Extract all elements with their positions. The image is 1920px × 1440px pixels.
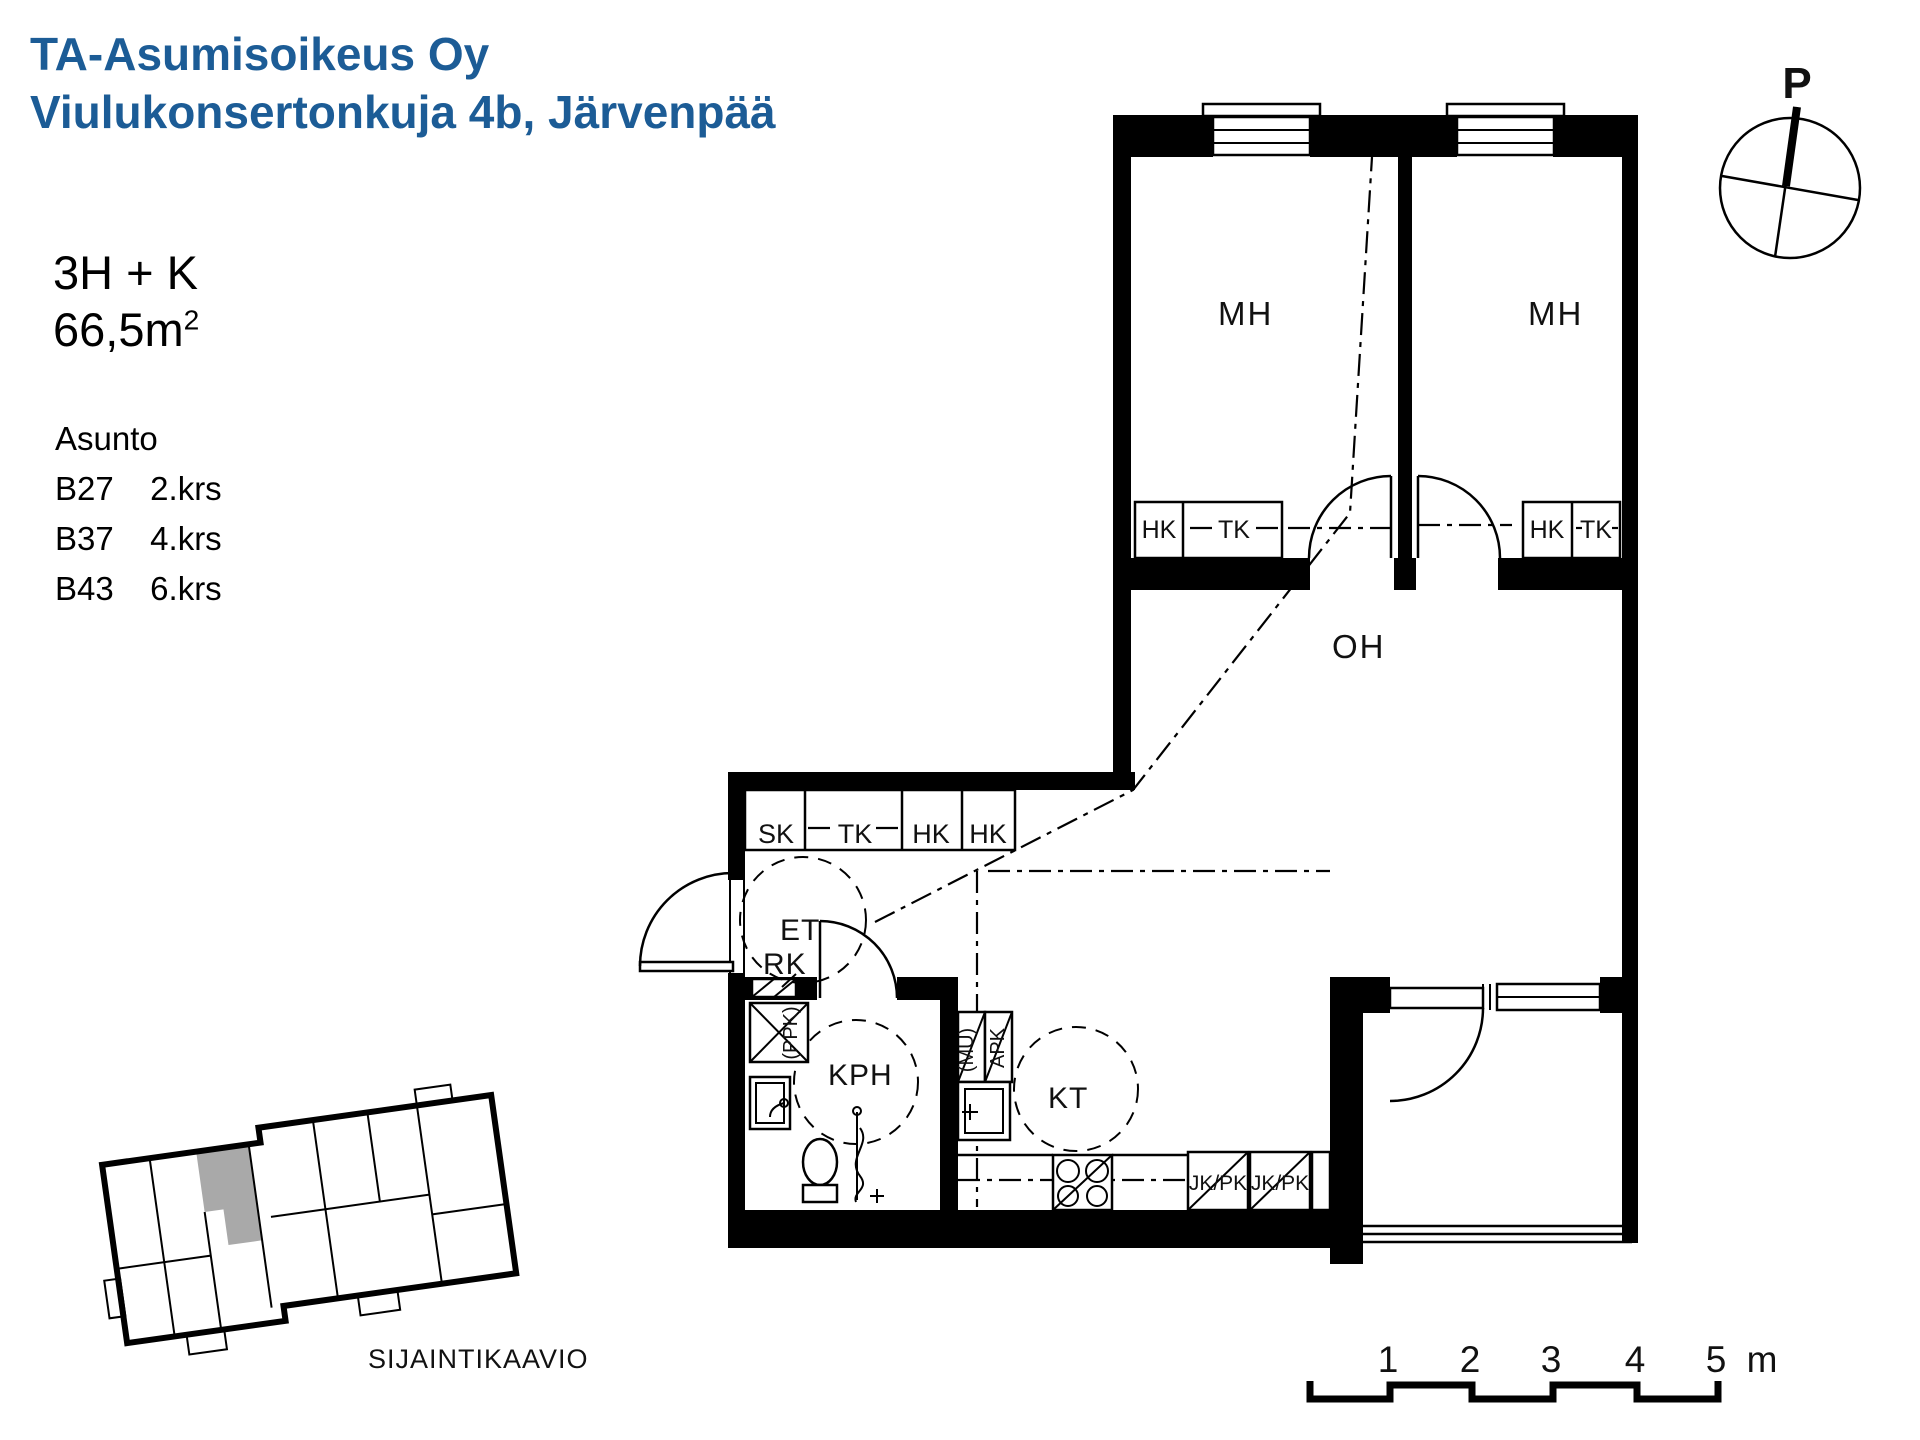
- toilet-icon: [803, 1139, 837, 1202]
- kitchen-sink-icon: [958, 1082, 1010, 1140]
- entrance-door-icon: [640, 873, 744, 973]
- closet-label: HK: [1142, 516, 1177, 544]
- floor-plan-page: TA-Asumisoikeus Oy Viulukonsertonkuja 4b…: [0, 0, 1920, 1440]
- ppk-label: (PPK): [780, 1006, 802, 1059]
- scale-bar-line: [1310, 1381, 1718, 1399]
- window-icon: [1483, 984, 1600, 1010]
- room-label-rk: RK: [763, 948, 807, 981]
- window-icon: [1447, 104, 1564, 155]
- scale-unit: m: [1747, 1339, 1778, 1380]
- closet-label: SK: [758, 819, 794, 849]
- balcony-door-icon: [1390, 988, 1483, 1101]
- closet-label: TK: [1580, 516, 1612, 544]
- room-label-et: ET: [780, 914, 820, 947]
- electric-panel-icon: [752, 979, 796, 997]
- scale-tick: 3: [1541, 1339, 1562, 1380]
- highlighted-unit: [196, 1144, 262, 1247]
- shower-icon: [853, 1107, 884, 1203]
- closet-label: HK: [969, 819, 1007, 849]
- window-icon: [1203, 104, 1320, 155]
- microwave-reservation-icon: (MU): [956, 1012, 985, 1082]
- cabinet-filler: [1312, 1152, 1330, 1210]
- closets: SK TK HK HK HK TK HK TK: [745, 502, 1620, 850]
- stove-icon: [1053, 1155, 1112, 1210]
- fridge-freezer-icon: JK/PK: [1188, 1152, 1248, 1210]
- scale-tick: 4: [1625, 1339, 1646, 1380]
- building-outline: [100, 1095, 518, 1343]
- closet-label: TK: [838, 819, 873, 849]
- bathroom-sink-icon: [750, 1077, 790, 1129]
- north-label: P: [1782, 59, 1811, 108]
- fridge-freezer-icon: JK/PK: [1250, 1152, 1310, 1210]
- bathroom-door-icon: [820, 921, 897, 998]
- location-diagram: SIJAINTIKAAVIO: [84, 1079, 589, 1374]
- balcony-railing-icon: [1363, 1226, 1632, 1242]
- apk-label: APK: [987, 1027, 1009, 1068]
- jkpk-label: JK/PK: [1251, 1172, 1309, 1195]
- closet-label: TK: [1218, 516, 1250, 544]
- location-diagram-caption: SIJAINTIKAAVIO: [368, 1344, 589, 1374]
- scale-bar: 1 2 3 4 5 m: [1310, 1339, 1777, 1399]
- closet-label: HK: [1530, 516, 1565, 544]
- dishwasher-reservation-icon: APK: [985, 1012, 1012, 1082]
- room-label-oh: OH: [1332, 628, 1386, 665]
- closet-label: HK: [912, 819, 950, 849]
- north-arrow: P: [1720, 59, 1860, 258]
- kitchen-fixtures: (MU) APK: [956, 1012, 1330, 1210]
- room-label-kph: KPH: [828, 1059, 893, 1092]
- jkpk-label: JK/PK: [1189, 1172, 1247, 1195]
- bedroom2-door-icon: [1418, 476, 1500, 558]
- floor-plan-drawing: P: [0, 0, 1920, 1440]
- mu-label: (MU): [956, 1028, 978, 1072]
- scale-tick: 1: [1378, 1339, 1399, 1380]
- scale-tick: 5: [1706, 1339, 1727, 1380]
- bedroom1-door-icon: [1309, 476, 1391, 558]
- room-label-kt: KT: [1048, 1082, 1088, 1115]
- scale-tick: 2: [1460, 1339, 1481, 1380]
- washing-machine-reservation-icon: (PPK): [750, 1003, 808, 1062]
- room-label-mh2: MH: [1528, 295, 1583, 332]
- room-label-mh1: MH: [1218, 295, 1273, 332]
